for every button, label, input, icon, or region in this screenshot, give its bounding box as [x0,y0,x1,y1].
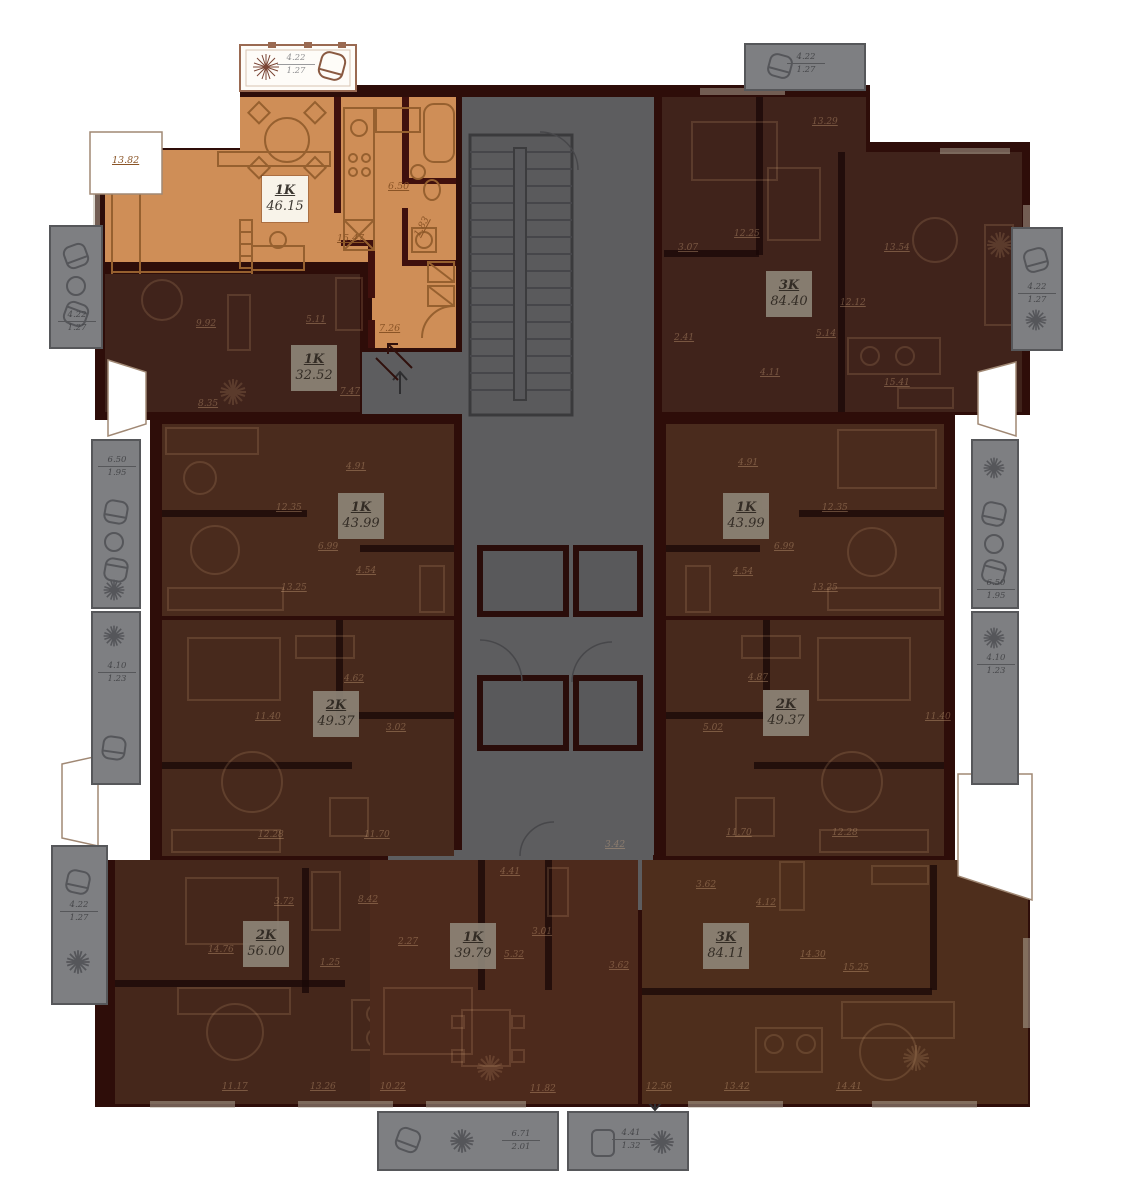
room-dim: 11.82 [530,1085,556,1094]
apartment-type: 2K [326,698,346,714]
balcony-area: 4.22 [797,52,816,62]
room-dim: 14.30 [800,951,826,960]
balcony-coef: 1.27 [1018,293,1056,305]
balcony-area: 4.22 [70,900,89,910]
floor-plan-drawing [0,0,1121,1200]
room-dim: 3.42 [605,841,625,850]
apartment-area: 84.11 [707,946,744,962]
room-dim: 4.62 [344,675,364,684]
room-dim: 12.25 [734,230,760,239]
apartment-type: 2K [256,928,276,944]
apartment-area: 46.15 [266,199,303,215]
room-dim: 13.29 [812,118,838,127]
room-dim: 11.70 [364,831,390,840]
balcony-area: 4.41 [622,1128,641,1138]
room-dim: 2.41 [674,334,694,343]
room-dim: 14.41 [836,1083,862,1092]
apartment-label-2k-49-37-left[interactable]: 2K 49.37 [313,691,359,737]
balcony-label: 4.10 1.23 [977,653,1015,676]
apartment-region-84-11[interactable] [642,860,1028,1104]
room-dim: 9.92 [196,320,216,329]
balcony-label: 4.22 1.27 [277,53,315,76]
balcony-label: 6.50 1.95 [98,455,136,478]
room-dim: 1.25 [320,959,340,968]
room-dim: 4.54 [733,568,753,577]
apartment-label-2k-49-37-right[interactable]: 2K 49.37 [763,690,809,736]
room-dim: 13.26 [310,1083,336,1092]
apartment-label-2k-56-00[interactable]: 2K 56.00 [243,921,289,967]
apartment-region-43-99-right[interactable] [666,424,944,616]
balcony-area: 4.22 [1028,282,1047,292]
room-dim: 6.99 [774,543,794,552]
apartment-type: 1K [463,930,483,946]
apartment-region-39-79[interactable] [370,860,638,1104]
apartment-type: 1K [351,500,371,516]
apartment-label-1k-46-15[interactable]: 1K 46.15 [262,176,308,222]
balcony-coef: 1.95 [98,466,136,478]
balcony-area: 4.22 [68,310,87,320]
room-dim: 4.12 [756,899,776,908]
room-dim: 3.01 [532,928,552,937]
apartment-area: 43.99 [342,516,379,532]
room-dim: 12.28 [832,829,858,838]
balcony-coef: 1.27 [277,64,315,76]
balcony-area: 6.71 [512,1129,531,1139]
balcony-coef: 1.27 [58,321,96,333]
balcony-coef: 2.01 [502,1140,540,1152]
apartment-label-1k-39-79[interactable]: 1K 39.79 [450,923,496,969]
room-dim: 5.11 [306,316,326,325]
room-dim: 12.28 [258,831,284,840]
room-dim: 12.35 [276,504,302,513]
room-dim: 5.32 [504,951,524,960]
balcony-coef: 1.23 [977,664,1015,676]
room-dim: 6.99 [318,543,338,552]
room-dim: 13.25 [281,584,307,593]
apartment-region-43-99-left[interactable] [162,424,454,616]
room-dim: 15.41 [884,379,910,388]
room-dim: 4.91 [346,463,366,472]
room-dim: 3.72 [274,898,294,907]
apartment-region-49-37-right[interactable] [666,620,944,856]
room-dim: 11.70 [726,829,752,838]
apartment-area: 84.40 [770,294,807,310]
apartment-area: 49.37 [767,713,804,729]
room-dim: 3.07 [678,244,698,253]
room-dim: 4.91 [738,459,758,468]
apartment-type: 1K [304,352,324,368]
room-dim: 13.42 [724,1083,750,1092]
balcony-label: 4.22 1.27 [58,310,96,333]
apartment-region-49-37-left[interactable] [162,620,454,856]
apartment-label-1k-32-52[interactable]: 1K 32.52 [291,345,337,391]
room-dim: 3.62 [609,962,629,971]
balcony-area: 4.10 [108,661,127,671]
room-dim: 8.42 [358,896,378,905]
balcony-coef: 1.27 [60,911,98,923]
room-dim: 10.22 [380,1083,406,1092]
balcony-label: 4.22 1.27 [787,52,825,75]
room-dim: 4.87 [748,674,768,683]
balcony-area: 4.22 [287,53,306,63]
balcony-label: 4.22 1.27 [60,900,98,923]
room-dim: 3.62 [696,881,716,890]
room-dim: 6.50 [388,182,409,192]
room-dim: 11.40 [255,713,281,722]
balcony-coef: 1.32 [612,1139,650,1151]
apartment-type: 1K [275,183,295,199]
balcony-area: 6.50 [108,455,127,465]
apartment-type: 1K [736,500,756,516]
room-dim: 11.17 [222,1083,248,1092]
balcony-coef: 1.27 [787,63,825,75]
apartment-label-3k-84-11[interactable]: 3K 84.11 [703,923,749,969]
balcony-area: 4.10 [987,653,1006,663]
room-dim: 4.11 [760,369,780,378]
room-dim: 14.76 [208,946,234,955]
floor-plan-canvas: 1K 46.15 1K 32.52 3K 84.40 1K 43.99 1K 4… [0,0,1121,1200]
balcony-label: 4.10 1.23 [98,661,136,684]
room-dim: 15.25 [843,964,869,973]
apartment-type: 3K [779,278,799,294]
room-dim: 3.02 [386,724,406,733]
apartment-type: 3K [716,930,736,946]
balcony-label: 6.50 1.95 [977,578,1015,601]
balcony-label: 6.71 2.01 [502,1129,540,1152]
balcony-label: 4.22 1.27 [1018,282,1056,305]
room-dim: 5.02 [703,724,723,733]
room-dim: 12.35 [822,504,848,513]
apartment-area: 39.79 [454,946,491,962]
room-dim: 13.54 [884,244,910,253]
room-dim: 12.56 [646,1083,672,1092]
balcony-coef: 1.95 [977,589,1015,601]
apartment-area: 43.99 [727,516,764,532]
room-dim: 4.54 [356,567,376,576]
room-dim: 15.47 [337,234,364,244]
apartment-type: 2K [776,697,796,713]
room-dim: 13.25 [812,584,838,593]
room-dim: 7.47 [340,388,360,397]
room-dim: 2.27 [398,938,418,947]
staircase [470,135,572,415]
balcony-area: 6.50 [987,578,1006,588]
room-dim: 7.26 [379,324,400,334]
room-dim: 13.82 [112,156,139,166]
balcony-coef: 1.23 [98,672,136,684]
apartment-area: 49.37 [317,714,354,730]
apartment-label-3k-84-40[interactable]: 3K 84.40 [766,271,812,317]
room-dim: 12.12 [840,299,866,308]
apartment-area: 56.00 [247,944,284,960]
room-dim: 4.41 [500,868,520,877]
room-dim: 5.14 [816,330,836,339]
room-dim: 11.40 [925,713,951,722]
apartment-area: 32.52 [295,368,332,384]
room-dim: 8.35 [198,400,218,409]
apartment-label-1k-43-99-right[interactable]: 1K 43.99 [723,493,769,539]
apartment-label-1k-43-99-left[interactable]: 1K 43.99 [338,493,384,539]
balcony-label: 4.41 1.32 [612,1128,650,1151]
